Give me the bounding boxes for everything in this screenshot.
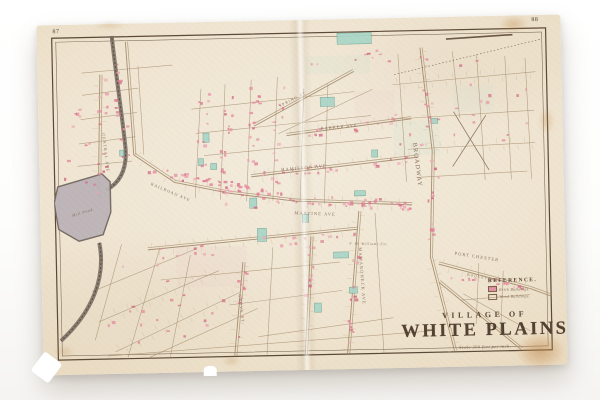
survey-mark [452, 111, 490, 170]
map-frame: BROADWAYMAMARONECK AVEPORT CHESTERHAMILT… [51, 27, 554, 361]
place-label: F. M. Williams Est. [348, 242, 388, 247]
street-label: MAMARONECK AVE [358, 247, 367, 305]
boundary-line [393, 34, 541, 75]
legend-label-wood: Wood Buildings. [499, 293, 530, 299]
plate-number-right: 88 [531, 17, 538, 23]
foxing-stain [92, 21, 126, 31]
legend-item-brick: Brick Buildings. [488, 284, 570, 292]
street-label: CENTRAL AVE [101, 133, 111, 173]
legend-swatch-brick-icon [488, 286, 497, 292]
legend-item-wood: Wood Buildings. [488, 292, 570, 300]
street-label: MARTINE AVE [294, 210, 336, 216]
legend-swatch-wood-icon [488, 293, 497, 299]
mill-pond [54, 174, 112, 242]
map-title-line2: WHITE PLAINS [387, 318, 583, 343]
map-sheet: BROADWAYMAMARONECK AVEPORT CHESTERHAMILT… [36, 15, 567, 376]
map-title-block: VILLAGE OF WHITE PLAINS Scale 300 feet p… [386, 308, 583, 351]
legend-label-brick: Brick Buildings. [499, 286, 530, 292]
street-label: BARKER AVE [320, 122, 357, 130]
plate-number-left: 87 [52, 29, 59, 35]
legend-heading: REFERENCE. [488, 276, 570, 284]
photo-backdrop: BROADWAYMAMARONECK AVEPORT CHESTERHAMILT… [0, 0, 600, 400]
map-legend: REFERENCE. Brick Buildings. Wood Buildin… [488, 276, 570, 299]
street-label: PORT CHESTER [454, 251, 499, 263]
paper-nick [204, 366, 217, 376]
